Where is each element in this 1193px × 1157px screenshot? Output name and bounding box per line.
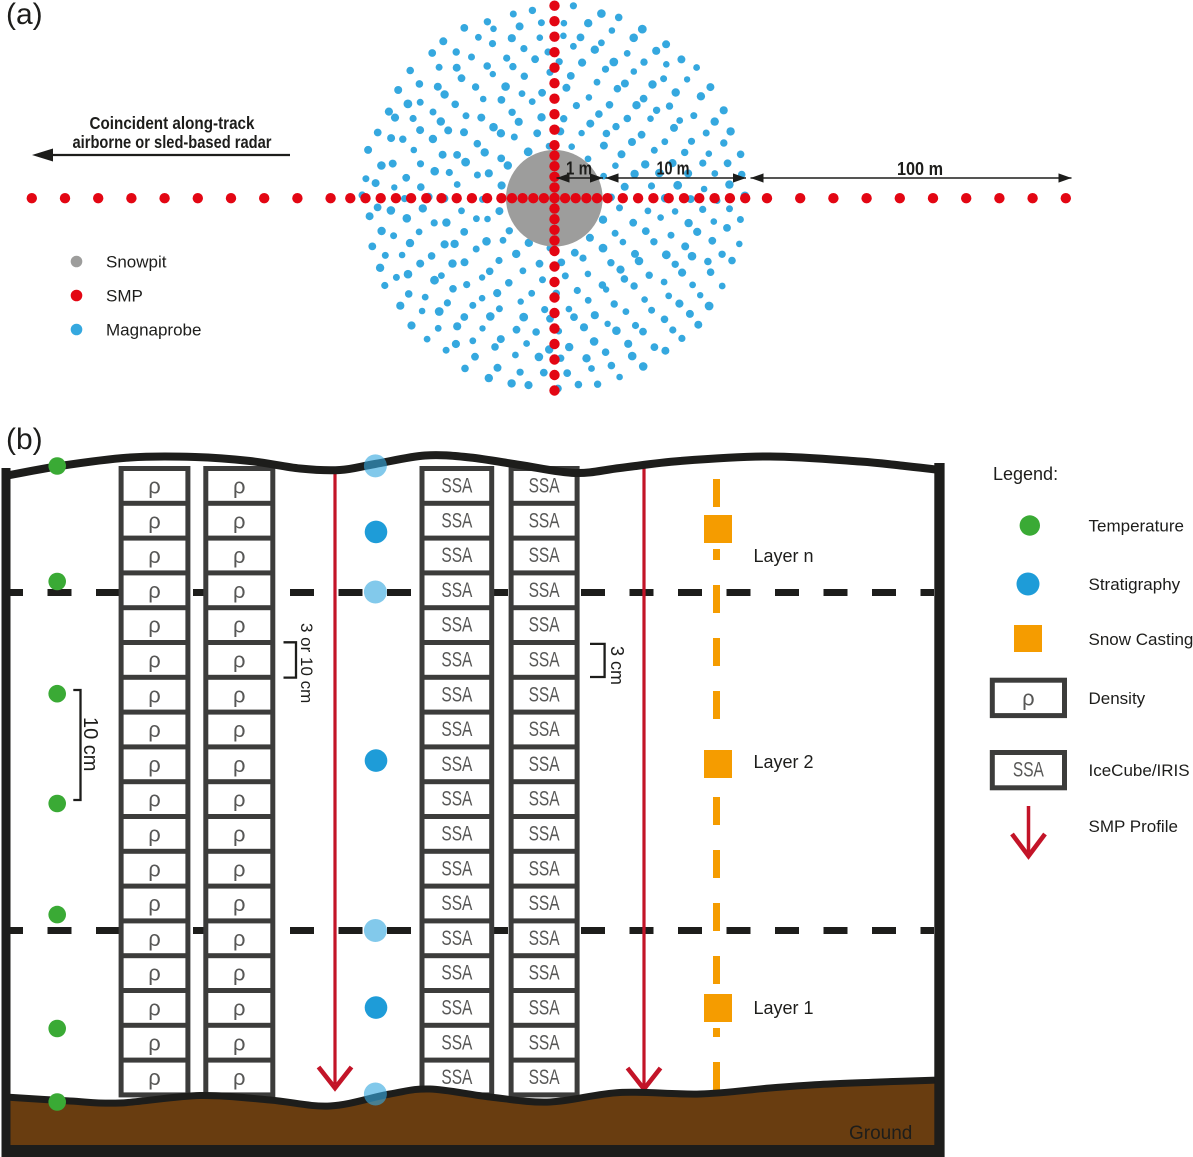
- svg-text:SSA: SSA: [529, 892, 560, 915]
- svg-text:Density: Density: [1089, 689, 1146, 708]
- svg-text:airborne or sled-based radar: airborne or sled-based radar: [73, 132, 272, 152]
- svg-text:1 m: 1 m: [566, 159, 592, 179]
- svg-text:ρ: ρ: [148, 1065, 161, 1090]
- svg-text:ρ: ρ: [148, 856, 161, 881]
- svg-text:SMP Profile: SMP Profile: [1089, 817, 1178, 836]
- svg-text:ρ: ρ: [148, 717, 161, 742]
- svg-text:ρ: ρ: [233, 961, 246, 986]
- svg-text:SSA: SSA: [441, 544, 472, 567]
- svg-text:SSA: SSA: [441, 788, 472, 811]
- svg-text:SSA: SSA: [441, 683, 472, 706]
- svg-text:SSA: SSA: [529, 997, 560, 1020]
- svg-text:SSA: SSA: [529, 857, 560, 880]
- svg-text:ρ: ρ: [233, 752, 246, 777]
- svg-text:SSA: SSA: [529, 649, 560, 672]
- svg-text:SSA: SSA: [441, 753, 472, 776]
- svg-text:ρ: ρ: [233, 891, 246, 916]
- svg-text:ρ: ρ: [148, 543, 161, 568]
- svg-text:SSA: SSA: [441, 1066, 472, 1089]
- svg-text:Magnaprobe: Magnaprobe: [106, 321, 201, 340]
- svg-text:ρ: ρ: [233, 613, 246, 638]
- svg-text:ρ: ρ: [148, 822, 161, 847]
- svg-text:SSA: SSA: [529, 544, 560, 567]
- svg-text:SSA: SSA: [441, 927, 472, 950]
- svg-text:SSA: SSA: [441, 718, 472, 741]
- svg-text:Ground: Ground: [849, 1123, 912, 1144]
- svg-text:SSA: SSA: [529, 579, 560, 602]
- svg-text:ρ: ρ: [148, 578, 161, 603]
- svg-text:ρ: ρ: [148, 508, 161, 533]
- svg-text:ρ: ρ: [233, 1065, 246, 1090]
- svg-text:ρ: ρ: [148, 752, 161, 777]
- svg-text:SSA: SSA: [529, 753, 560, 776]
- svg-text:ρ: ρ: [148, 996, 161, 1021]
- svg-text:SSA: SSA: [441, 614, 472, 637]
- svg-text:SSA: SSA: [529, 1031, 560, 1054]
- svg-text:ρ: ρ: [1022, 686, 1035, 711]
- svg-text:SSA: SSA: [529, 788, 560, 811]
- svg-text:(b): (b): [6, 423, 43, 456]
- svg-text:ρ: ρ: [148, 787, 161, 812]
- svg-text:ρ: ρ: [148, 1030, 161, 1055]
- svg-text:ρ: ρ: [233, 1030, 246, 1055]
- svg-text:SSA: SSA: [529, 823, 560, 846]
- svg-text:3 cm: 3 cm: [607, 646, 627, 685]
- svg-text:ρ: ρ: [233, 996, 246, 1021]
- svg-text:SSA: SSA: [441, 892, 472, 915]
- svg-text:SSA: SSA: [441, 823, 472, 846]
- svg-text:Layer 1: Layer 1: [754, 998, 814, 1018]
- svg-text:Layer 2: Layer 2: [754, 752, 814, 772]
- svg-text:ρ: ρ: [233, 474, 246, 499]
- svg-text:ρ: ρ: [233, 508, 246, 533]
- svg-text:Temperature: Temperature: [1089, 517, 1184, 536]
- svg-text:SSA: SSA: [441, 475, 472, 498]
- svg-text:ρ: ρ: [148, 648, 161, 673]
- svg-text:SSA: SSA: [441, 857, 472, 880]
- svg-text:ρ: ρ: [148, 961, 161, 986]
- svg-text:SSA: SSA: [441, 962, 472, 985]
- svg-text:SSA: SSA: [529, 718, 560, 741]
- svg-text:SSA: SSA: [529, 1066, 560, 1089]
- svg-text:SSA: SSA: [529, 962, 560, 985]
- svg-text:ρ: ρ: [148, 613, 161, 638]
- svg-text:ρ: ρ: [233, 856, 246, 881]
- svg-text:Coincident along-track: Coincident along-track: [90, 113, 255, 133]
- svg-text:ρ: ρ: [233, 787, 246, 812]
- svg-text:Stratigraphy: Stratigraphy: [1089, 575, 1181, 594]
- svg-text:ρ: ρ: [233, 926, 246, 951]
- svg-text:SSA: SSA: [441, 1031, 472, 1054]
- svg-text:SSA: SSA: [441, 997, 472, 1020]
- svg-text:100 m: 100 m: [897, 159, 943, 179]
- svg-text:SSA: SSA: [441, 579, 472, 602]
- svg-text:ρ: ρ: [233, 822, 246, 847]
- svg-text:Snowpit: Snowpit: [106, 253, 167, 272]
- svg-text:Snow Casting: Snow Casting: [1089, 630, 1193, 649]
- svg-text:3 or 10 cm: 3 or 10 cm: [297, 623, 316, 703]
- svg-text:ρ: ρ: [233, 682, 246, 707]
- svg-text:SSA: SSA: [529, 614, 560, 637]
- svg-text:ρ: ρ: [148, 474, 161, 499]
- svg-text:10 cm: 10 cm: [79, 717, 101, 771]
- svg-text:ρ: ρ: [233, 717, 246, 742]
- svg-text:SMP: SMP: [106, 287, 143, 306]
- svg-text:SSA: SSA: [529, 683, 560, 706]
- svg-text:SSA: SSA: [1013, 759, 1044, 782]
- svg-text:SSA: SSA: [441, 649, 472, 672]
- svg-text:Layer n: Layer n: [754, 546, 814, 566]
- svg-text:ρ: ρ: [233, 648, 246, 673]
- svg-text:10 m: 10 m: [657, 159, 690, 179]
- svg-text:ρ: ρ: [233, 578, 246, 603]
- svg-text:ρ: ρ: [148, 682, 161, 707]
- svg-text:SSA: SSA: [441, 509, 472, 532]
- svg-text:SSA: SSA: [529, 927, 560, 950]
- svg-text:SSA: SSA: [529, 475, 560, 498]
- svg-text:ρ: ρ: [148, 891, 161, 916]
- svg-text:SSA: SSA: [529, 509, 560, 532]
- svg-text:IceCube/IRIS: IceCube/IRIS: [1089, 761, 1190, 780]
- svg-text:ρ: ρ: [233, 543, 246, 568]
- svg-text:(a): (a): [6, 0, 43, 31]
- svg-text:ρ: ρ: [148, 926, 161, 951]
- svg-text:Legend:: Legend:: [993, 464, 1058, 484]
